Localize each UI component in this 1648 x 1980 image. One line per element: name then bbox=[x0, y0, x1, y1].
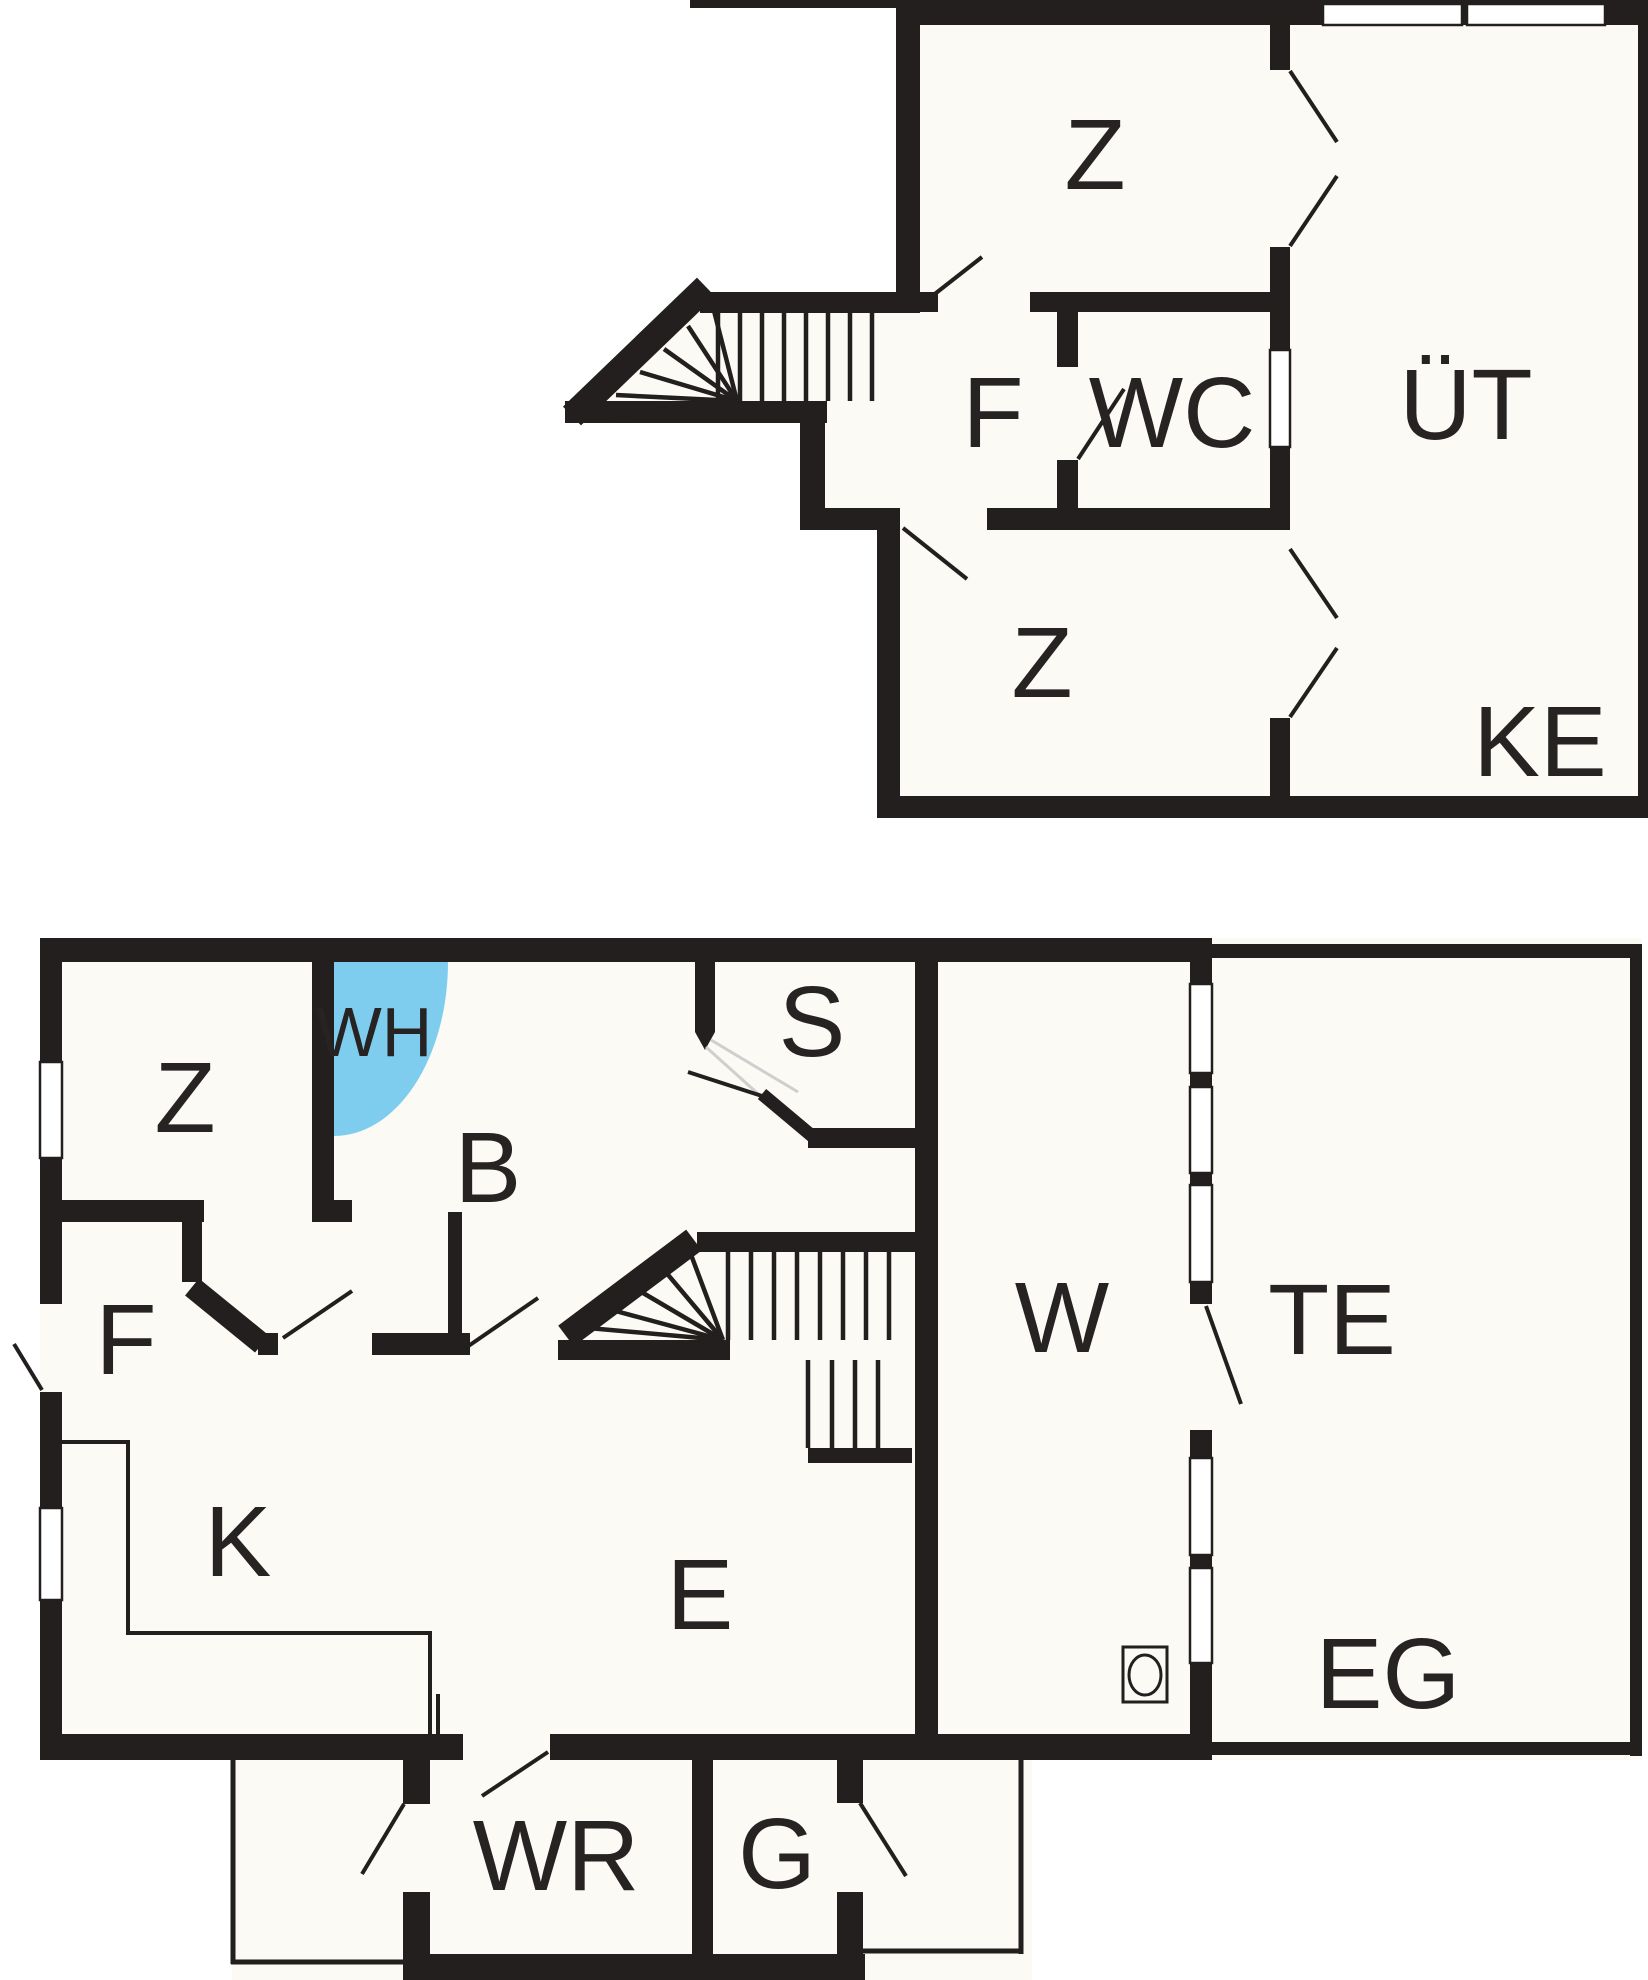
stove-icon bbox=[1123, 1647, 1167, 1702]
door-opening bbox=[900, 506, 987, 532]
wall-stair-top bbox=[700, 292, 900, 313]
wall-wc-left bbox=[1057, 305, 1078, 367]
window bbox=[1190, 1568, 1212, 1663]
wall-extension-bottom bbox=[403, 1954, 865, 1980]
window bbox=[40, 1508, 62, 1600]
wall bbox=[1190, 1663, 1212, 1734]
room-label-e: E bbox=[667, 1539, 734, 1651]
room-label-z-lower: Z bbox=[154, 1042, 215, 1154]
window bbox=[1467, 4, 1605, 25]
wall bbox=[1190, 962, 1212, 984]
wall bbox=[896, 0, 920, 313]
window bbox=[1270, 350, 1290, 447]
wall-g-right bbox=[837, 1755, 863, 1803]
room-label-z-upper-1: Z bbox=[1064, 99, 1125, 211]
wall-terrace-bottom bbox=[1212, 1742, 1642, 1755]
room-label-f-upper: F bbox=[962, 357, 1023, 469]
window bbox=[1190, 984, 1212, 1073]
room-label-b: B bbox=[455, 1112, 522, 1224]
floor-label-ke: KE bbox=[1473, 686, 1606, 798]
door-opening bbox=[938, 290, 1030, 314]
wall bbox=[1270, 247, 1290, 350]
room-label-wh: WH bbox=[316, 993, 433, 1071]
wall bbox=[877, 530, 900, 796]
room-label-f-lower: F bbox=[95, 1284, 156, 1396]
room-label-w: W bbox=[1015, 1262, 1110, 1374]
wall-terrace-right bbox=[1630, 944, 1642, 1756]
room-label-z-upper-2: Z bbox=[1011, 607, 1072, 719]
lower-floor-plan: Z WH B S W TE F K E WR G EG bbox=[14, 938, 1642, 1980]
wall-g-right bbox=[837, 1892, 863, 1954]
wall-s-bottom bbox=[808, 1128, 915, 1148]
upper-floor-plan: Z F WC ÜT Z KE bbox=[565, 0, 1648, 818]
room-label-wr: WR bbox=[473, 1800, 640, 1912]
wall bbox=[1190, 1073, 1212, 1087]
wall-stair-top bbox=[697, 1232, 915, 1252]
wall bbox=[1270, 718, 1290, 796]
wall-right bbox=[1638, 0, 1648, 818]
window bbox=[1190, 1087, 1212, 1173]
door-opening bbox=[463, 1734, 550, 1760]
floor-plan-svg: Z F WC ÜT Z KE bbox=[0, 0, 1648, 1980]
wall-wc-left bbox=[1057, 460, 1078, 530]
wall bbox=[1190, 1282, 1212, 1304]
wall bbox=[42, 1200, 204, 1222]
room-label-te: TE bbox=[1268, 1264, 1396, 1376]
wall bbox=[448, 1212, 462, 1339]
wall-s-pier bbox=[695, 962, 715, 1032]
wall bbox=[312, 1200, 352, 1222]
wall bbox=[1190, 1173, 1212, 1185]
window bbox=[1190, 1185, 1212, 1282]
window bbox=[40, 1062, 62, 1158]
wall bbox=[1190, 1430, 1212, 1458]
wall-stair-bottom bbox=[558, 1340, 730, 1360]
wall bbox=[1190, 1555, 1212, 1568]
room-label-k: K bbox=[205, 1486, 272, 1598]
floor-label-eg: EG bbox=[1316, 1618, 1460, 1730]
wall-bottom bbox=[877, 796, 1648, 818]
window bbox=[1323, 4, 1462, 25]
floor-plan-page: Z F WC ÜT Z KE bbox=[0, 0, 1648, 1980]
door-swing-entry bbox=[14, 1344, 42, 1390]
window bbox=[1190, 1458, 1212, 1555]
wall-wr-g bbox=[692, 1755, 713, 1955]
wall-wr-left bbox=[403, 1760, 430, 1804]
wall bbox=[1270, 447, 1290, 520]
room-label-uet: ÜT bbox=[1399, 349, 1532, 461]
room-label-g: G bbox=[738, 1798, 816, 1910]
wall-living-divider bbox=[915, 962, 938, 1734]
room-label-wc: WC bbox=[1089, 357, 1256, 469]
wall bbox=[1270, 25, 1290, 70]
wall bbox=[258, 1333, 278, 1355]
wall-top bbox=[40, 938, 1212, 962]
room-label-s: S bbox=[779, 966, 846, 1078]
wall bbox=[800, 423, 825, 508]
wall-bottom bbox=[40, 1734, 1212, 1760]
wall-terrace-top bbox=[1212, 944, 1638, 958]
wall bbox=[182, 1222, 202, 1282]
wall bbox=[690, 0, 900, 8]
door-opening-entry bbox=[40, 1304, 62, 1392]
wall bbox=[800, 508, 1290, 530]
